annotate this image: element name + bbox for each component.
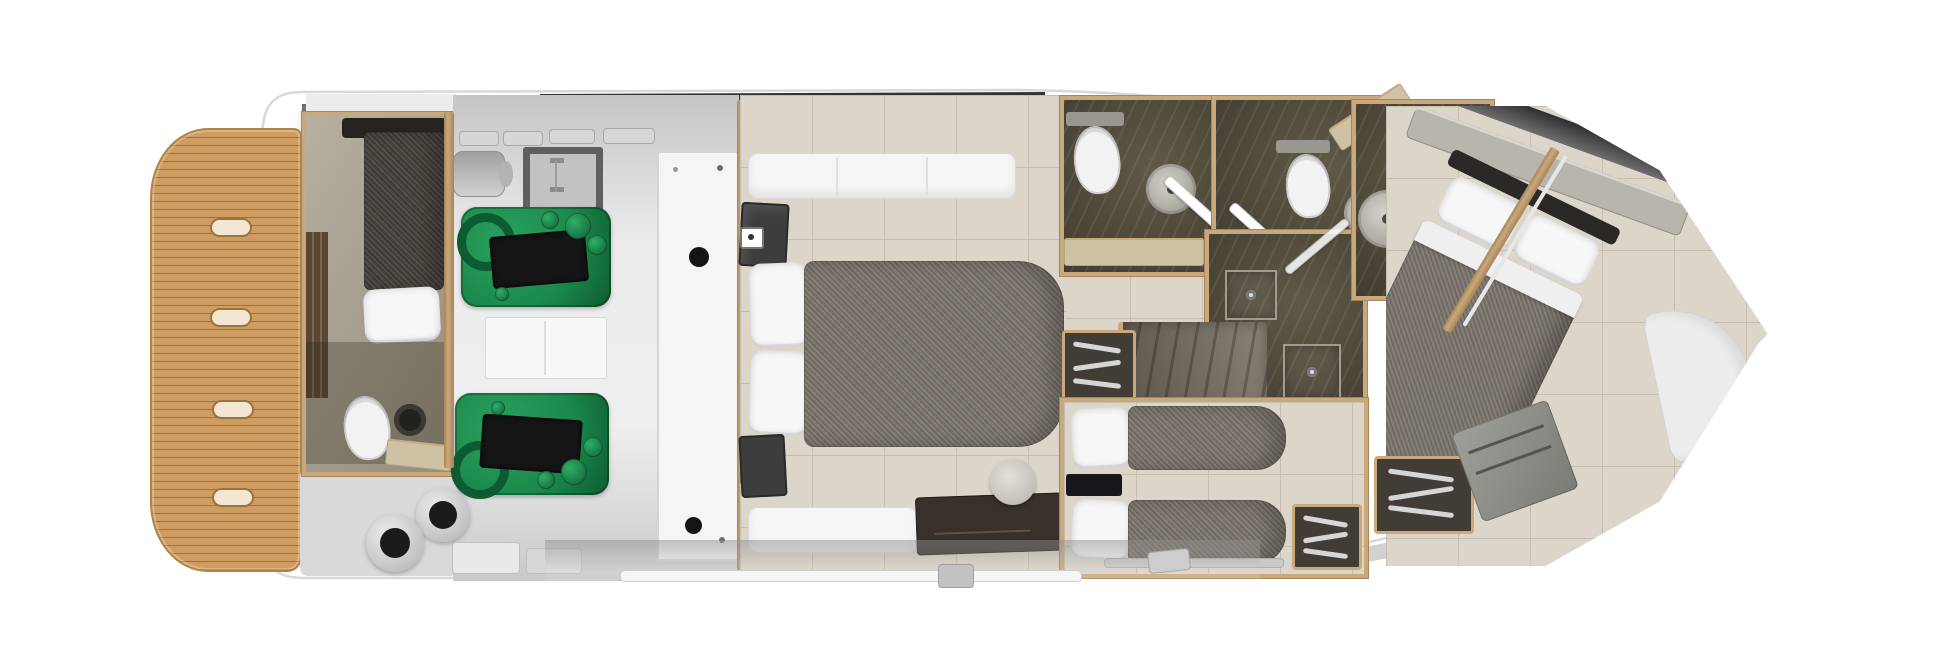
platform-hatch-handle — [212, 400, 254, 419]
desk-drawer-line — [934, 530, 1030, 535]
staircase-shadow — [1123, 322, 1267, 408]
engine-mount — [495, 287, 509, 301]
speaker-dot — [748, 234, 754, 240]
twin-nightstand — [1066, 474, 1122, 496]
swim-platform — [150, 128, 302, 572]
master-toilet — [1071, 124, 1124, 196]
engine-room-cabinet — [657, 151, 743, 561]
deck-fitting — [1147, 548, 1191, 574]
engine-vent — [549, 129, 595, 144]
clothes-hanger — [1388, 486, 1454, 501]
engine-pulley — [565, 213, 591, 239]
deck-hatch-seam — [555, 160, 557, 192]
clothes-hanger — [1073, 341, 1121, 353]
cabinet-port-hole — [685, 517, 702, 534]
twin-bed-pillow — [1070, 499, 1131, 562]
workbench-seam — [544, 321, 546, 375]
engine-vent — [503, 131, 543, 146]
crew-bed-pillow — [363, 286, 442, 344]
engine-vent — [459, 131, 499, 146]
engine-pulley — [587, 235, 607, 255]
yacht-lower-deck-plan — [0, 0, 1950, 665]
shower-drain — [1307, 367, 1317, 377]
fuel-filter — [416, 488, 470, 542]
day-head-toilet — [1283, 152, 1332, 220]
toilet-cistern — [1066, 112, 1124, 126]
bulkhead — [444, 112, 454, 468]
wall-speaker — [740, 227, 764, 249]
deck-hatch-latch — [550, 158, 564, 163]
master-pillow — [749, 350, 810, 436]
muffler-cap — [499, 161, 513, 187]
engine-vent — [603, 128, 655, 144]
engine-mount — [491, 401, 505, 415]
staircase — [1118, 322, 1267, 408]
twin-bed-pillow — [1070, 407, 1131, 470]
clothes-hanger — [1073, 378, 1121, 389]
starboard-engine — [455, 393, 609, 495]
cabinet-screw — [719, 537, 725, 543]
shower-drain — [1246, 290, 1256, 300]
clothes-hanger — [1388, 468, 1454, 482]
master-head-counter — [1064, 238, 1204, 266]
master-cabin — [740, 95, 1066, 581]
sofa-seam — [926, 157, 928, 195]
lobby-wardrobe — [1062, 330, 1136, 402]
shower-tray — [1283, 344, 1341, 400]
locker-drawer-line — [1468, 424, 1544, 454]
fuel-filter — [366, 514, 424, 572]
equipment-box — [452, 542, 520, 574]
clothes-hanger — [1073, 360, 1121, 372]
crew-sink — [394, 404, 426, 436]
crew-bed-mattress — [364, 132, 444, 290]
engine-pulley — [537, 471, 555, 489]
engine-room-workbench — [485, 317, 607, 379]
deck-hatch-latch — [550, 187, 564, 192]
deck-fitting — [938, 564, 974, 588]
crew-cabin — [302, 112, 462, 476]
platform-hatch-handle — [212, 488, 254, 507]
twin-cabin — [1060, 398, 1368, 578]
cabinet-port-hole — [689, 247, 709, 267]
master-pillow — [749, 262, 810, 348]
engine-pulley — [561, 459, 587, 485]
platform-hatch-handle — [210, 308, 252, 327]
port-engine — [461, 207, 611, 307]
engine-room — [453, 95, 739, 581]
crew-counter — [385, 439, 453, 472]
platform-hatch-handle — [210, 218, 252, 237]
toilet-cistern — [1276, 140, 1330, 153]
twin-cabin-sill — [1104, 558, 1284, 568]
clothes-hanger — [1388, 505, 1454, 518]
vanity-stool — [990, 459, 1036, 505]
vanity-desk — [915, 492, 1063, 555]
locker-drawer-line — [1475, 445, 1551, 475]
engine-pulley — [583, 437, 603, 457]
clothes-hanger — [1303, 532, 1348, 544]
fuel-filter-cap — [380, 528, 410, 558]
master-head — [1060, 96, 1216, 276]
master-bench-bottom — [748, 507, 918, 553]
clothes-hanger — [1303, 515, 1348, 528]
engine-pulley — [541, 211, 559, 229]
cabinet-screw — [717, 165, 723, 171]
twin-wardrobe — [1292, 504, 1362, 570]
master-sofa-top — [748, 153, 1016, 199]
master-bed-mattress — [804, 261, 1064, 447]
twin-bed-mattress — [1128, 406, 1286, 470]
equipment-box — [526, 548, 582, 574]
deck-rail-bar — [620, 570, 1082, 582]
shower-tray — [1225, 270, 1277, 320]
cabinet-screw — [673, 167, 678, 172]
clothes-hanger — [1303, 548, 1348, 559]
tv-cabinet-bottom — [738, 434, 787, 498]
sofa-seam — [836, 157, 838, 195]
muffler — [453, 151, 505, 197]
vip-wardrobe — [1374, 456, 1474, 534]
fuel-filter-cap — [429, 501, 457, 529]
